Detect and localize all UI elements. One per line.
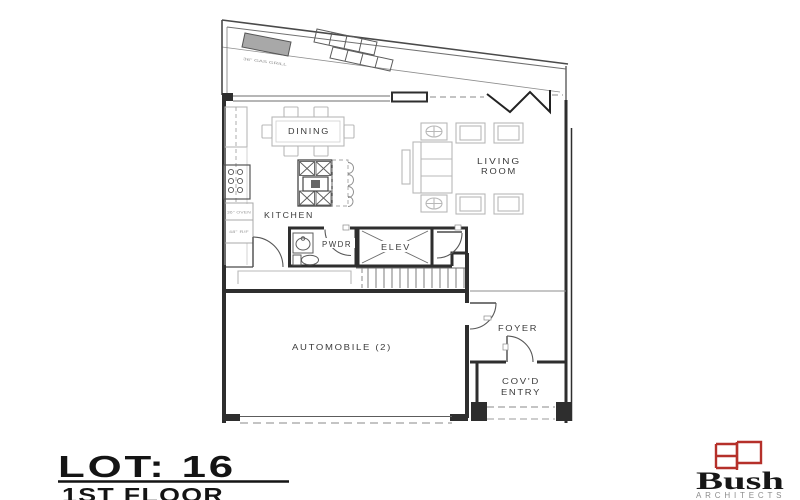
title-block: LOT: 16 1ST FLOOR <box>58 449 289 500</box>
cooktop <box>224 165 250 199</box>
stair-treads <box>368 268 464 288</box>
pwdr-toilet <box>293 255 319 265</box>
ba-monogram-icon <box>716 442 761 470</box>
bar-stools <box>348 163 354 207</box>
roof-deck: 36" GAS GRILL <box>222 20 568 95</box>
lot-title: LOT: 16 <box>58 449 236 484</box>
room-label-covd-1: COV'D <box>502 376 540 386</box>
room-label-living-2: ROOM <box>481 167 517 176</box>
room-label-covd-2: ENTRY <box>501 387 541 397</box>
room-label-kitchen: KITCHEN <box>264 211 314 220</box>
floor-plan-sheet: 36" GAS GRILL <box>0 0 800 500</box>
room-label-automobile: AUTOMOBILE (2) <box>292 342 392 352</box>
entry-door-arc <box>507 336 533 362</box>
garage: AUTOMOBILE (2) <box>222 253 468 418</box>
living-room: LIVING ROOM <box>402 123 532 214</box>
floor-title: 1ST FLOOR <box>62 485 224 500</box>
room-label-foyer: FOYER <box>498 323 538 333</box>
gas-grill-label: 36" GAS GRILL <box>243 57 287 67</box>
foyer: FOYER <box>470 291 566 362</box>
room-label-dining: DINING <box>288 127 330 136</box>
dining-room: DINING <box>262 107 354 156</box>
room-label-living-1: LIVING <box>477 157 521 166</box>
core-block: PWDR ELEV <box>288 225 468 266</box>
logo-subtitle: ARCHITECTS <box>696 491 784 500</box>
architect-logo: Bush ARCHITECTS <box>696 442 784 500</box>
oven-label: 36" OVEN <box>227 210 251 215</box>
room-label-elev: ELEV <box>381 243 411 252</box>
refrigerator-label: 48" R/F <box>229 229 249 234</box>
covered-entry: COV'D ENTRY <box>471 362 572 421</box>
floor-plan-drawing: 36" GAS GRILL <box>0 0 800 500</box>
pwdr-sink <box>293 233 313 253</box>
room-label-pwdr: PWDR <box>322 240 352 249</box>
kitchen-island <box>298 160 354 207</box>
refrigerator: 48" R/F <box>225 220 253 243</box>
oven: 36" OVEN <box>225 203 253 220</box>
window <box>392 93 427 102</box>
wall-break-symbol <box>487 90 550 112</box>
kitchen-door-arc <box>253 237 283 267</box>
foyer-door-arc <box>470 303 496 329</box>
